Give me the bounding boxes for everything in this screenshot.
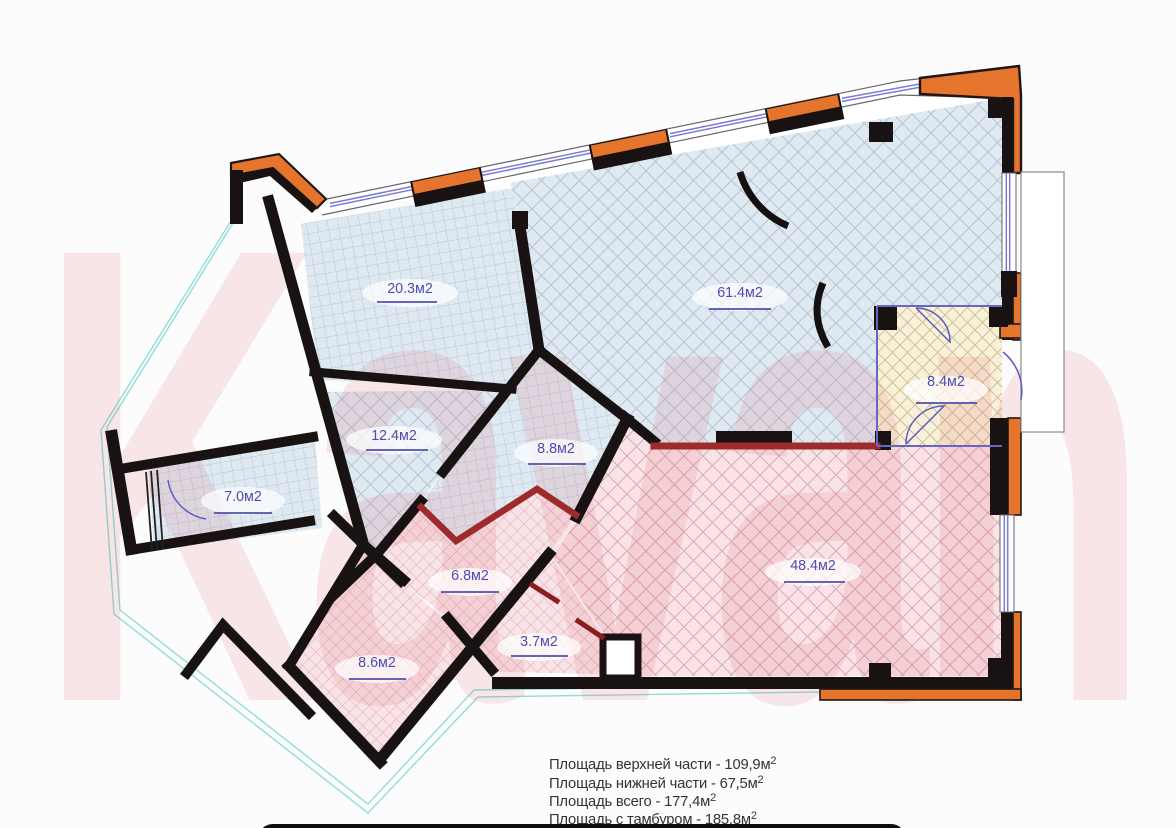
- svg-text:Площадь всего - 177,4м2: Площадь всего - 177,4м2: [549, 792, 716, 810]
- svg-text:Kavan: Kavan: [38, 112, 1137, 828]
- svg-text:20.3м2: 20.3м2: [387, 281, 433, 297]
- svg-text:3.7м2: 3.7м2: [520, 634, 558, 650]
- svg-text:6.8м2: 6.8м2: [451, 568, 489, 584]
- svg-text:12.4м2: 12.4м2: [371, 428, 417, 444]
- svg-text:48.4м2: 48.4м2: [790, 558, 836, 574]
- svg-text:61.4м2: 61.4м2: [717, 285, 763, 301]
- svg-text:Площадь нижней части - 67,5м2: Площадь нижней части - 67,5м2: [549, 774, 764, 792]
- svg-text:7.0м2: 7.0м2: [224, 489, 262, 505]
- svg-text:Площадь верхней части - 109,9м: Площадь верхней части - 109,9м2: [549, 755, 776, 773]
- svg-text:8.6м2: 8.6м2: [358, 655, 396, 671]
- svg-text:8.4м2: 8.4м2: [927, 374, 965, 390]
- svg-text:8.8м2: 8.8м2: [537, 441, 575, 457]
